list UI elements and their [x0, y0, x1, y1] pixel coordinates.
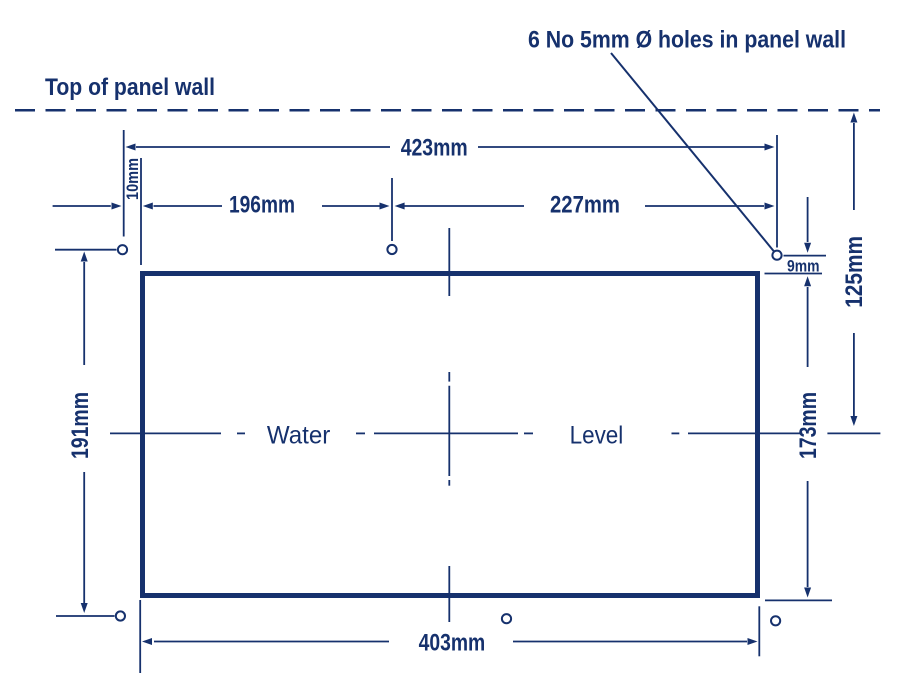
svg-text:Level: Level — [570, 422, 624, 450]
svg-text:6 No 5mm Ø holes in panel wall: 6 No 5mm Ø holes in panel wall — [528, 26, 846, 53]
svg-text:Water: Water — [267, 422, 330, 450]
svg-text:196mm: 196mm — [229, 192, 295, 219]
svg-text:9mm: 9mm — [787, 256, 820, 275]
svg-text:403mm: 403mm — [419, 629, 486, 656]
svg-text:Top of panel wall: Top of panel wall — [45, 74, 215, 101]
svg-text:10mm: 10mm — [123, 158, 142, 200]
svg-text:227mm: 227mm — [550, 192, 620, 219]
svg-text:423mm: 423mm — [401, 134, 468, 161]
svg-text:173mm: 173mm — [795, 392, 822, 459]
svg-text:191mm: 191mm — [67, 392, 94, 459]
svg-text:125mm: 125mm — [841, 236, 868, 308]
